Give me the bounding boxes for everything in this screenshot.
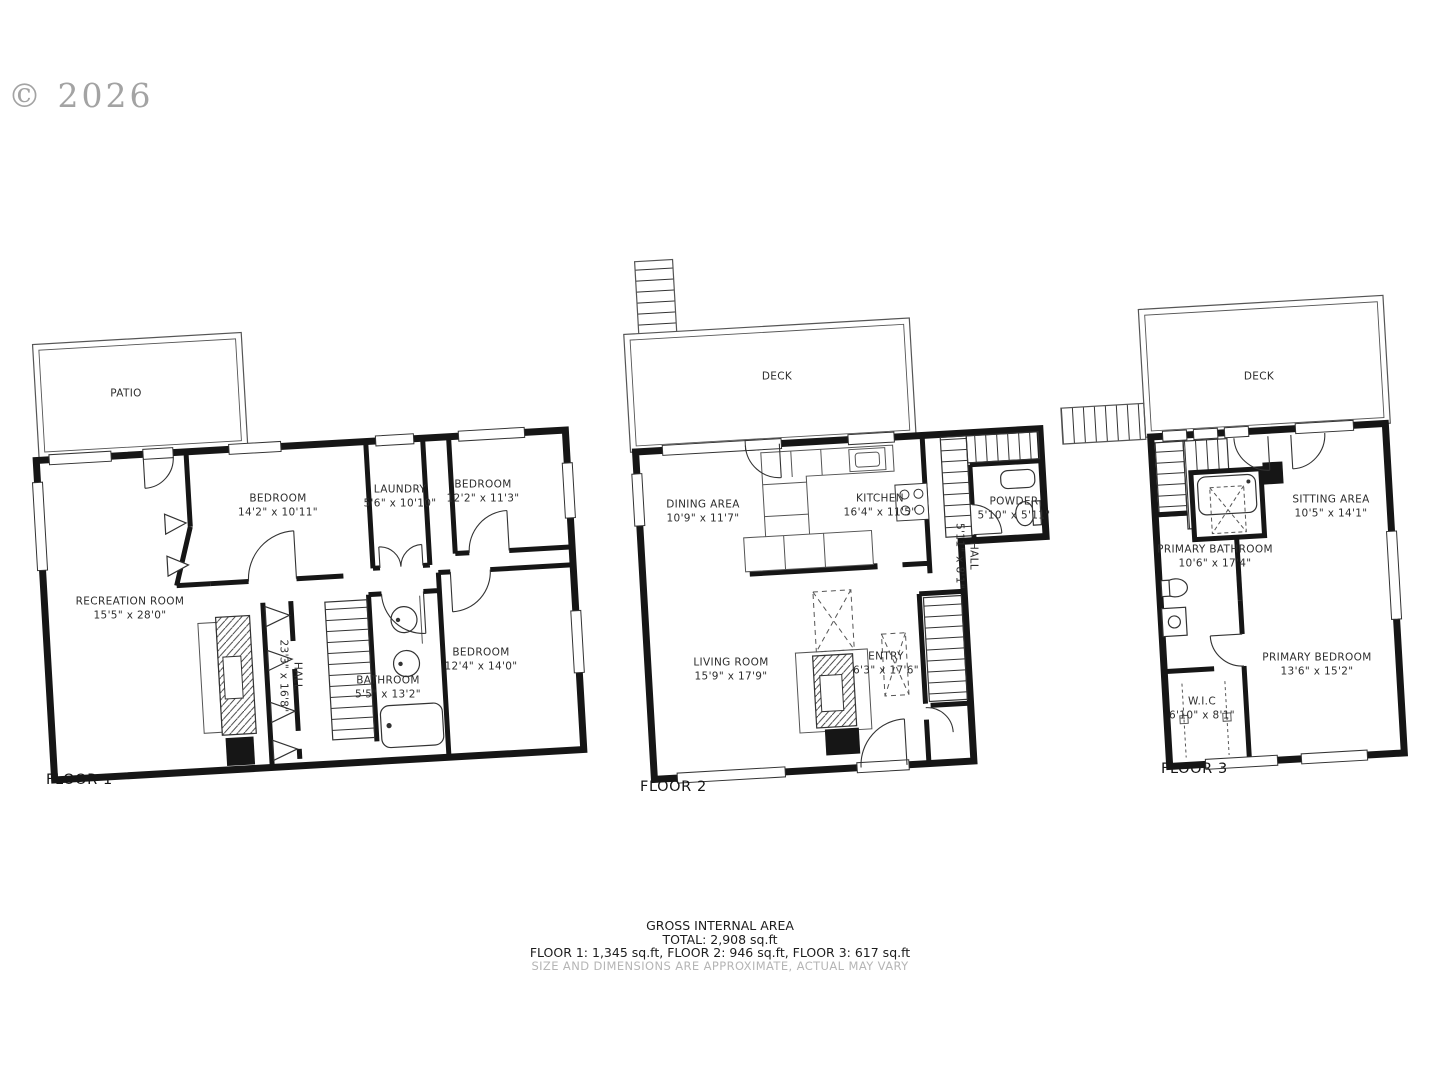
room-label-sitting-area: SITTING AREA10'5" x 14'1" — [1292, 494, 1369, 521]
room-label-primary-bathroom: PRIMARY BATHROOM10'6" x 17'4" — [1157, 544, 1273, 571]
area-summary-floors: FLOOR 1: 1,345 sq.ft, FLOOR 2: 946 sq.ft… — [0, 946, 1440, 960]
area-summary-title: GROSS INTERNAL AREA — [0, 919, 1440, 933]
room-label-laundry: LAUNDRY5'6" x 10'10" — [364, 484, 437, 511]
floor2-name: FLOOR 2 — [640, 779, 707, 795]
room-label-bedroom-1: BEDROOM14'2" x 10'11" — [238, 493, 318, 520]
floor1-plan — [25, 314, 589, 780]
room-label-living-room: LIVING ROOM15'9" x 17'9" — [693, 657, 768, 684]
room-label-deck-floor2: DECK — [762, 370, 792, 384]
room-label-bathroom: BATHROOM5'5" x 13'2" — [355, 675, 421, 702]
room-label-powder: POWDER5'10" x 5'11" — [978, 496, 1051, 523]
area-summary: GROSS INTERNAL AREA TOTAL: 2,908 sq.ft F… — [0, 919, 1440, 973]
floor2-deck-outline — [624, 318, 916, 452]
room-label-wic: W.I.C6'10" x 8'1" — [1169, 696, 1235, 723]
room-label-bedroom-3: BEDROOM12'4" x 14'0" — [445, 647, 518, 674]
floor3-deck-outline — [1138, 295, 1390, 437]
room-label-hall-floor1: HALL23'3" x 16'8" — [277, 640, 304, 713]
floorplan-page: © 2026 — [0, 0, 1440, 1080]
floor1-name: FLOOR 1 — [46, 772, 113, 788]
room-label-hall-floor2: HALL5'11" x 8'1" — [953, 523, 980, 589]
room-label-deck-floor3: DECK — [1244, 370, 1274, 384]
area-summary-disclaimer: SIZE AND DIMENSIONS ARE APPROXIMATE, ACT… — [0, 960, 1440, 974]
room-label-recreation-room: RECREATION ROOM15'5" x 28'0" — [76, 596, 185, 623]
area-summary-total: TOTAL: 2,908 sq.ft — [0, 933, 1440, 947]
room-label-kitchen: KITCHEN16'4" x 11'5" — [844, 493, 917, 520]
floor1-stairs-icon — [325, 600, 375, 740]
floor3-name: FLOOR 3 — [1161, 761, 1228, 777]
floor3-deck-stairs-icon — [1061, 403, 1146, 444]
room-label-primary-bedroom: PRIMARY BEDROOM13'6" x 15'2" — [1262, 652, 1371, 679]
room-label-dining-area: DINING AREA10'9" x 11'7" — [666, 499, 740, 526]
room-label-entry: ENTRY6'3" x 17'6" — [853, 651, 919, 678]
room-label-patio: PATIO — [110, 387, 142, 401]
room-label-bedroom-2: BEDROOM12'2" x 11'3" — [447, 479, 520, 506]
